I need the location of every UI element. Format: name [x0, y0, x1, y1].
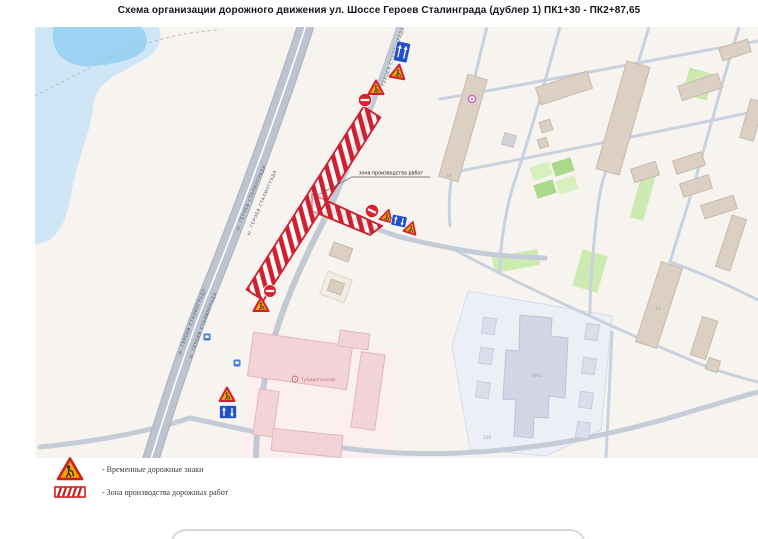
building-number: 9А/1: [532, 373, 542, 378]
lane-direction-sign: [220, 406, 237, 419]
map-background: [35, 27, 758, 458]
shop-poi-icon: [468, 95, 475, 102]
bus-stop-icon: [234, 360, 241, 367]
work-zone-hatch-icon: [52, 486, 88, 498]
hospital-poi-icon: [292, 376, 298, 382]
bus-stop-icon: [204, 334, 211, 341]
legend-label-temporary-signs: - Временные дорожные знаки: [102, 465, 203, 474]
legend: - Временные дорожные знаки - Зона произв…: [52, 456, 228, 498]
building-number: 1А: [655, 306, 661, 311]
building-number: 12А: [483, 435, 491, 440]
gray-building: [502, 133, 517, 148]
legend-item-work-zone: - Зона производства дорожных работ: [52, 486, 228, 498]
road-works-sign-icon: [52, 456, 88, 482]
hospital-poi-label: Тубдиспансер: [300, 377, 335, 383]
legend-item-temporary-signs: - Временные дорожные знаки: [52, 456, 228, 482]
bottom-card: [170, 529, 586, 539]
no-entry-sign: [263, 284, 277, 298]
work-zone-label: зона производства работ: [359, 171, 424, 177]
traffic-scheme-page: Схема организации дорожного движения ул.…: [0, 0, 758, 539]
building-number: 16: [446, 173, 452, 178]
legend-label-work-zone: - Зона производства дорожных работ: [102, 488, 228, 497]
